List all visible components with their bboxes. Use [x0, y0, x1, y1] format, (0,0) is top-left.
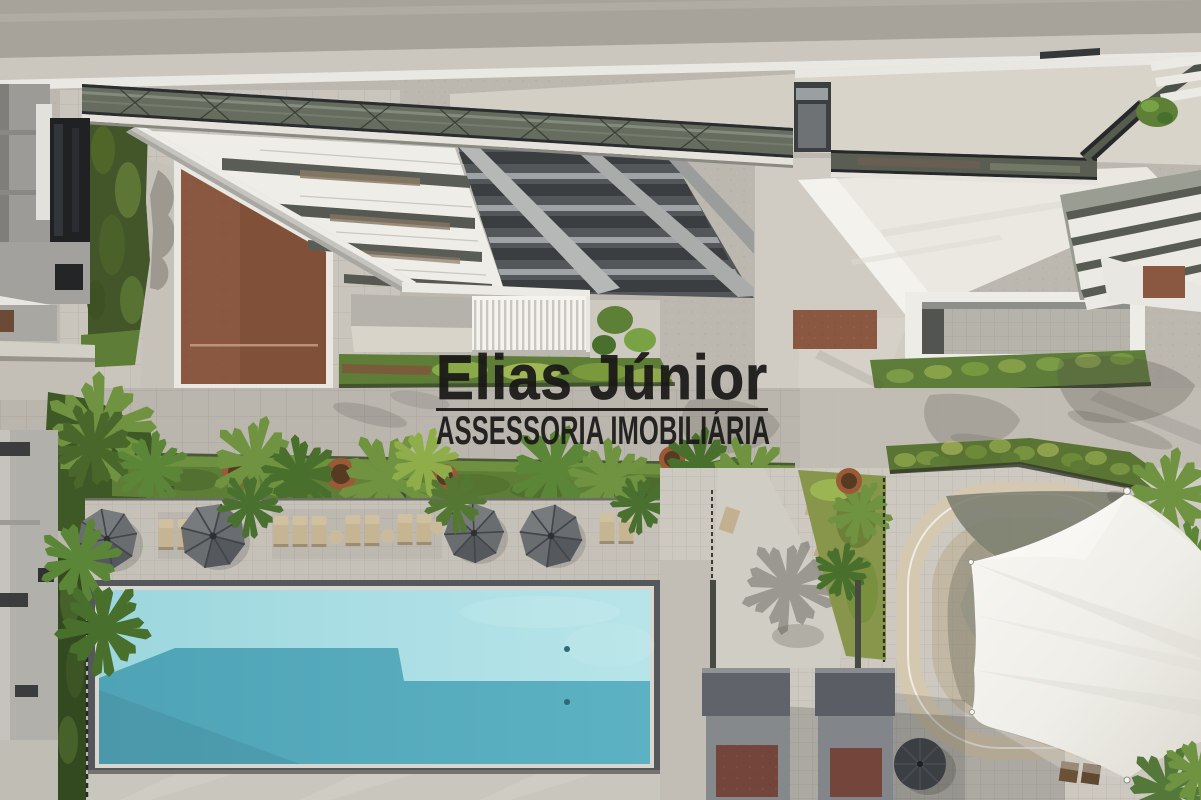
svg-text:Elias Júnior: Elias Júnior: [436, 343, 768, 413]
svg-text:ASSESSORIA IMOBILIÁRIA: ASSESSORIA IMOBILIÁRIA: [436, 408, 770, 453]
